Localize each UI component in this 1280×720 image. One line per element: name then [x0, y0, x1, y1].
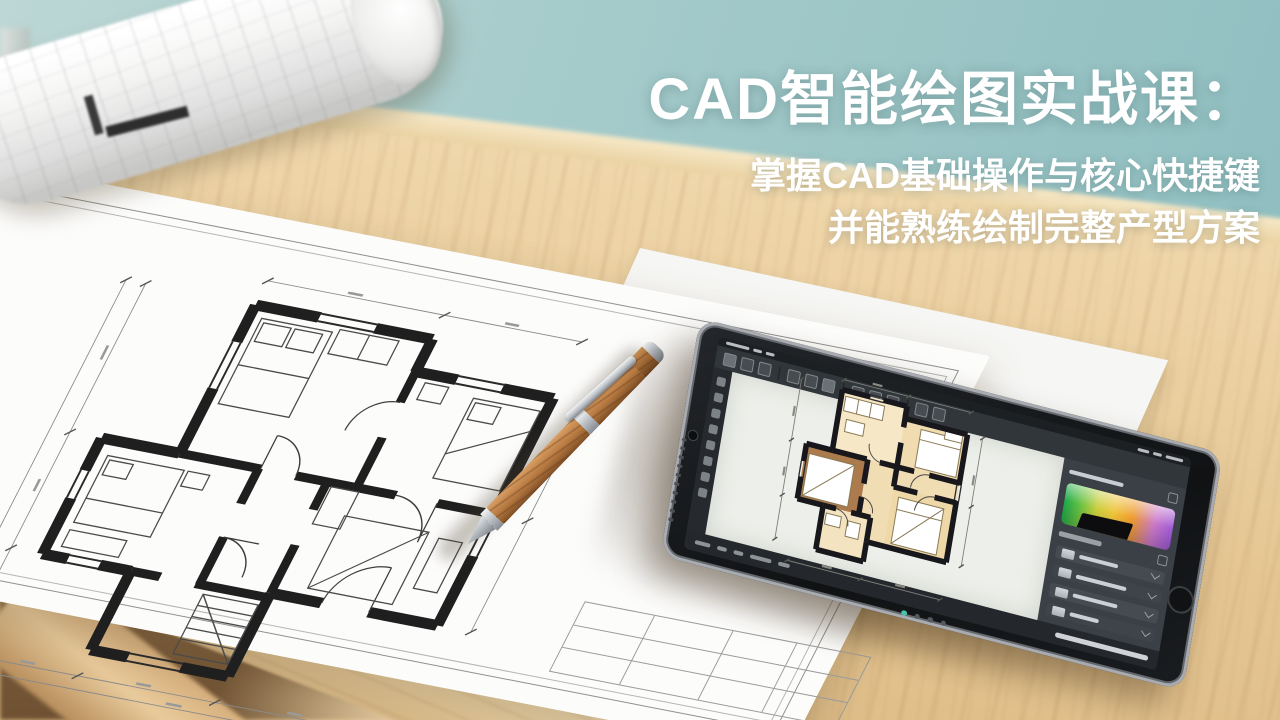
course-poster-photo: CAD智能绘图实战课： 掌握CAD基础操作与核心快捷键 并能熟练绘制完整产型方案 — [0, 0, 1280, 720]
roll-drawing-mark-2 — [84, 95, 104, 136]
select-tool-icon — [723, 352, 738, 368]
plan-interior-walls — [121, 305, 565, 629]
bottom-bar-smudge — [717, 545, 727, 551]
bottom-bar-smudge — [695, 539, 711, 547]
indicator-dot — [940, 620, 946, 627]
tool-dot-icon — [711, 408, 721, 419]
rect-tool-icon — [757, 361, 772, 377]
layer-thumb-icon — [1051, 605, 1065, 617]
status-text-smudge — [753, 348, 762, 354]
roll-drawing-mark — [105, 106, 189, 138]
bottom-bar-smudge — [733, 549, 743, 555]
poster-title: CAD智能绘图实战课： — [500, 52, 1260, 136]
line-tool-icon — [740, 356, 755, 372]
properties-panel — [1037, 458, 1186, 652]
poster-subtitle-line2: 并能熟练绘制完整产型方案 — [500, 202, 1260, 254]
indicator-dot-active — [901, 609, 907, 616]
bluetooth-icon — [1153, 452, 1162, 458]
chevron-down-icon — [1151, 570, 1161, 580]
tool-dot-icon — [697, 487, 707, 498]
layer-thumb-icon — [1055, 586, 1069, 598]
layer-name-smudge — [1072, 593, 1117, 608]
toolbar-separator — [778, 366, 781, 379]
tool-dot-icon — [716, 376, 726, 387]
layer-thumb-icon — [1061, 548, 1075, 560]
tool-dot-icon — [713, 392, 723, 403]
layer-name-smudge — [1079, 555, 1118, 569]
layer-name-smudge — [1069, 612, 1099, 623]
tool-dot-icon — [700, 471, 710, 482]
panel-options-icon — [1167, 492, 1178, 504]
indicator-dot — [914, 613, 920, 620]
section-title-smudge — [1059, 531, 1102, 546]
tool-dot-icon — [708, 424, 718, 435]
add-layer-icon — [1157, 554, 1168, 566]
layer-thumb-icon — [1058, 567, 1072, 579]
tool-dot-icon — [705, 440, 715, 451]
tool-dot-icon — [703, 455, 713, 466]
chevron-down-icon — [1147, 589, 1157, 599]
indicator-dot — [927, 616, 933, 623]
poster-subtitle-line1: 掌握CAD基础操作与核心快捷键 — [500, 150, 1260, 202]
wifi-icon — [1137, 448, 1149, 454]
chevron-down-icon — [1141, 628, 1151, 638]
status-text-smudge — [766, 351, 775, 357]
layer-name-smudge — [1076, 574, 1127, 591]
front-camera — [687, 429, 699, 443]
chevron-down-icon — [1144, 608, 1154, 618]
poster-text-overlay: CAD智能绘图实战课： 掌握CAD基础操作与核心快捷键 并能熟练绘制完整产型方案 — [500, 52, 1260, 254]
